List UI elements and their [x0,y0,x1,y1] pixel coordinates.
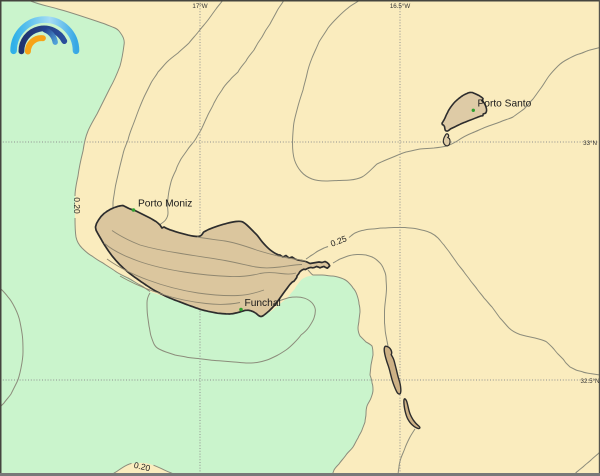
svg-text:32.5°N: 32.5°N [581,378,600,385]
svg-text:17°W: 17°W [192,3,207,10]
svg-text:16.5°W: 16.5°W [390,3,411,10]
svg-text:33°N: 33°N [583,140,597,147]
svg-text:0.20: 0.20 [72,197,82,214]
svg-text:Funchal: Funchal [245,298,281,309]
svg-text:Porto Moniz: Porto Moniz [138,199,192,210]
svg-text:Porto Santo: Porto Santo [478,99,532,110]
